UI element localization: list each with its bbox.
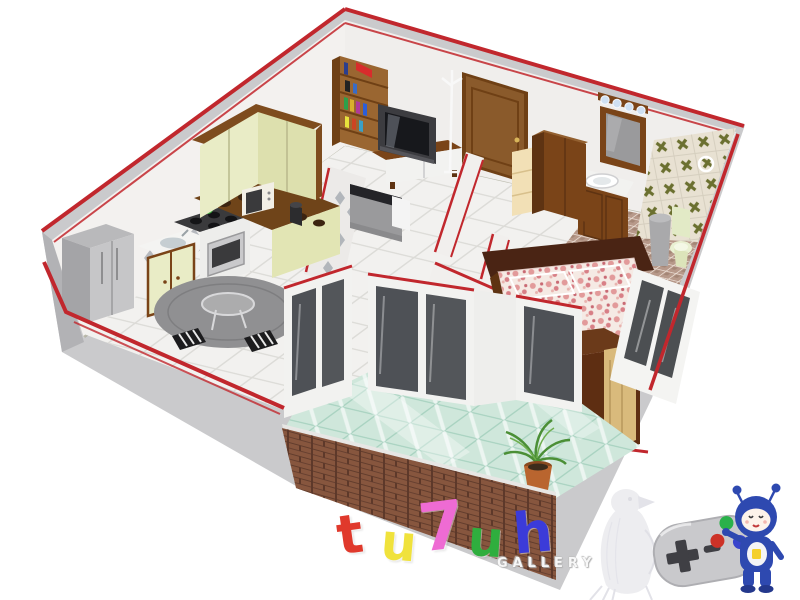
- vanity-mirror: [598, 92, 648, 174]
- house-3d-render: [0, 0, 800, 600]
- pillow-right: [570, 265, 630, 292]
- watermark-letter-h: h: [511, 504, 556, 563]
- hall-wardrobe: [532, 130, 588, 222]
- refrigerator: [62, 224, 134, 322]
- watermark-letter-u1: u: [379, 517, 419, 570]
- terrace-window-left: [284, 266, 352, 418]
- watermark-letter-7: 7: [415, 491, 469, 562]
- door-knob: [515, 138, 520, 143]
- coffee-maker: [290, 202, 302, 226]
- waste-bin: [649, 214, 671, 267]
- terrace-pillar: [474, 290, 516, 406]
- terrace-window-right: [516, 296, 582, 412]
- watermark-gallery-label: GALLERY: [497, 556, 596, 571]
- terrace-window-mid: [368, 274, 474, 406]
- mascots: [590, 484, 781, 600]
- pillow-left: [510, 272, 574, 299]
- floorplan-render-page: t u 7 u h GALLERY: [0, 0, 800, 600]
